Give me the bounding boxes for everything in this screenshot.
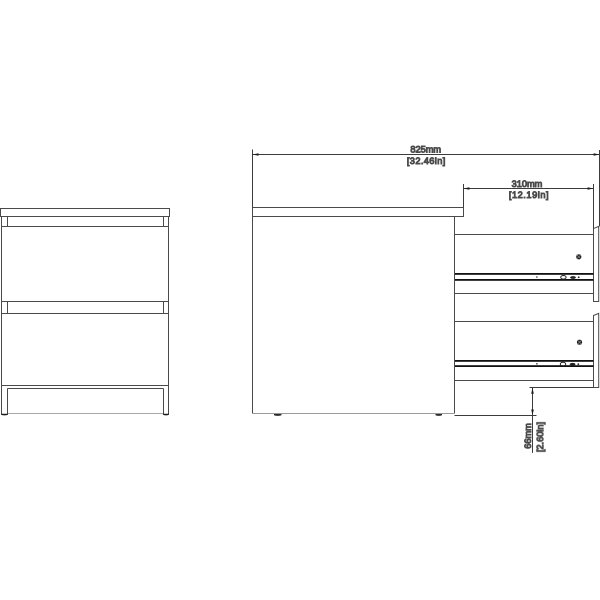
svg-text:[2.60in]: [2.60in] bbox=[535, 422, 545, 452]
svg-text:[32.46in]: [32.46in] bbox=[407, 156, 446, 166]
svg-text:66mm: 66mm bbox=[523, 423, 533, 449]
svg-text:310mm: 310mm bbox=[512, 179, 543, 189]
svg-text:[12.19in]: [12.19in] bbox=[509, 190, 549, 200]
svg-text:825mm: 825mm bbox=[410, 144, 441, 154]
